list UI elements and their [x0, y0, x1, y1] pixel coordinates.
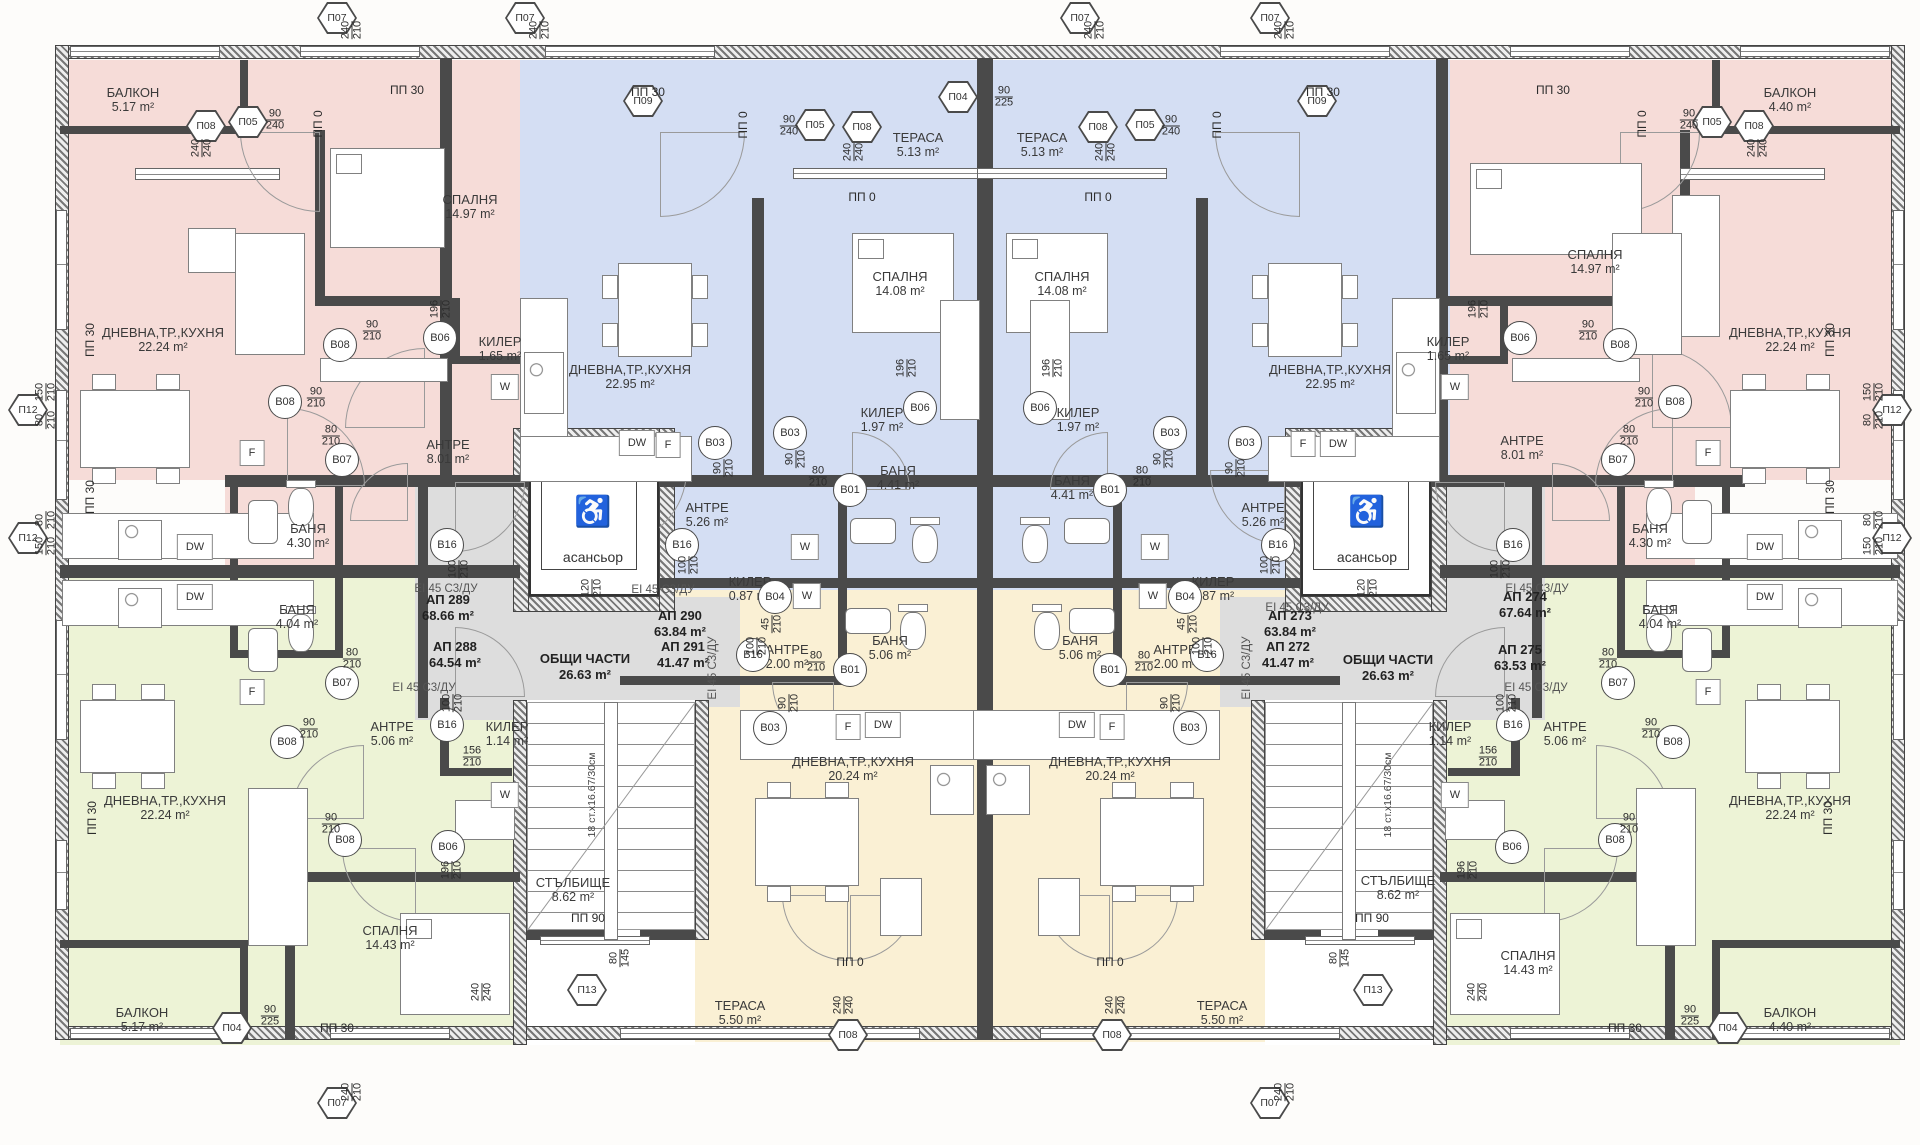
- pp-annotation: ПП 30: [85, 801, 99, 835]
- appliance-label: F: [1291, 431, 1316, 457]
- door-tag-circle: В06: [1023, 391, 1057, 425]
- fire-rating-label: EI 45 С3/ДУ: [1265, 602, 1328, 614]
- apartment-label: АП 29141.47 m²: [657, 639, 709, 671]
- fire-rating-label: EI 45 С3/ДУ: [1505, 583, 1568, 595]
- sink: [248, 628, 278, 672]
- room-area: 5.50 m²: [715, 1013, 766, 1028]
- door-tag-circle: В04: [758, 580, 792, 614]
- dimension: 150210: [1863, 383, 1886, 401]
- room-name: БАНЯ: [276, 602, 318, 617]
- room-area: 5.06 m²: [370, 734, 413, 749]
- pp-annotation: ПП 30: [1823, 480, 1837, 514]
- room-name: АНТРЕ: [370, 719, 413, 734]
- door-tag-circle: В07: [325, 666, 359, 700]
- room-area: 14.08 m²: [873, 284, 928, 299]
- sink: [845, 608, 891, 634]
- dimension: 90225: [261, 1005, 279, 1028]
- toilet-tank: [910, 517, 940, 525]
- dimension: 45210: [761, 615, 784, 633]
- room-area: 5.06 m²: [1543, 734, 1586, 749]
- apartment-label: ОБЩИ ЧАСТИ26.63 m²: [540, 651, 630, 683]
- room-name: ДНЕВНА,ТР.,КУХНЯ: [792, 754, 914, 769]
- stove-hob: [930, 765, 974, 815]
- room-name: СТЪЛБИЩЕ: [536, 875, 610, 890]
- toilet: [1022, 525, 1048, 563]
- room-area: 5.06 m²: [869, 648, 911, 663]
- dimension: 80210: [1133, 466, 1151, 489]
- room-label: СПАЛНЯ14.43 m²: [363, 923, 418, 953]
- interior-wall: [230, 480, 238, 656]
- room-label: ТЕРАСА5.13 m²: [893, 130, 944, 160]
- elevator-label: асансьор: [563, 549, 623, 565]
- window: [545, 46, 715, 57]
- dining-table: [80, 700, 175, 773]
- room-label: БАНЯ4.41 m²: [1051, 473, 1093, 503]
- room-area: 1.97 m²: [861, 420, 904, 435]
- room-name: БАНЯ: [1059, 633, 1101, 648]
- dimension: 90210: [1160, 694, 1183, 712]
- room-name: СПАЛНЯ: [363, 923, 418, 938]
- dimension: 90225: [1681, 1005, 1699, 1028]
- room-label: ДНЕВНА,ТР.,КУХНЯ22.24 m²: [102, 325, 224, 355]
- appliance-label: DW: [177, 584, 213, 610]
- door-tag-circle: В08: [1603, 328, 1637, 362]
- dimension: 100210: [442, 694, 465, 712]
- room-area: 5.17 m²: [116, 1020, 169, 1035]
- dimension: 196210: [441, 861, 464, 879]
- stove-hob: [1798, 520, 1842, 560]
- pp-annotation: ПП 0: [1084, 190, 1111, 204]
- room-area: 14.43 m²: [363, 938, 418, 953]
- dimension: 240240: [1095, 143, 1118, 161]
- hex-tag-label: П04: [940, 83, 976, 111]
- room-label: ДНЕВНА,ТР.,КУХНЯ22.24 m²: [104, 793, 226, 823]
- elevator-label: асансьор: [1337, 549, 1397, 565]
- room-name: ТЕРАСА: [893, 130, 944, 145]
- room-area: 22.95 m²: [1269, 377, 1391, 392]
- room-area: 4.30 m²: [1629, 536, 1671, 551]
- room-area: 8.01 m²: [426, 452, 469, 467]
- dimension: 90210: [778, 694, 801, 712]
- room-label: ДНЕВНА,ТР.,КУХНЯ22.95 m²: [1269, 362, 1391, 392]
- apartment-number: ОБЩИ ЧАСТИ: [540, 651, 630, 667]
- room-label: КИЛЕР1.97 m²: [861, 405, 904, 435]
- room-label: АНТРЕ8.01 m²: [426, 437, 469, 467]
- room-area: 4.41 m²: [1051, 488, 1093, 503]
- chair: [1806, 374, 1830, 390]
- room-label: СПАЛНЯ14.97 m²: [443, 192, 498, 222]
- room-name: БАНЯ: [1639, 602, 1681, 617]
- door-tag-circle: В06: [1503, 321, 1537, 355]
- apartment-label: АП 28968.66 m²: [422, 592, 474, 624]
- appliance-label: W: [1141, 534, 1169, 560]
- dimension: 80210: [343, 648, 361, 671]
- interior-wall: [1617, 480, 1625, 656]
- room-name: АНТРЕ: [685, 500, 728, 515]
- dining-table: [618, 263, 692, 357]
- dimension: 240240: [1105, 996, 1128, 1014]
- door-tag-circle: В06: [1495, 830, 1529, 864]
- window: [1893, 840, 1904, 910]
- room-label: БАНЯ5.06 m²: [1059, 633, 1101, 663]
- pp-annotation: ПП 0: [736, 111, 750, 138]
- dimension: 90210: [1620, 813, 1638, 836]
- chair: [1806, 684, 1830, 700]
- chair: [825, 782, 849, 798]
- room-name: БАЛКОН: [1764, 85, 1817, 100]
- room-label: БАНЯ5.06 m²: [869, 633, 911, 663]
- dimension: 150210: [35, 537, 58, 555]
- interior-wall: [230, 650, 343, 658]
- chair: [1252, 275, 1268, 299]
- room-area: 4.40 m²: [1764, 100, 1817, 115]
- room-label: БАНЯ4.04 m²: [276, 602, 318, 632]
- stove-hob: [118, 520, 162, 560]
- room-area: 2.00 m²: [765, 657, 808, 672]
- apartment-area: 26.63 m²: [540, 667, 630, 683]
- interior-wall: [335, 480, 343, 656]
- room-label: АНТРЕ2.00 m²: [765, 642, 808, 672]
- window: [56, 390, 67, 500]
- appliance-label: DW: [619, 430, 655, 456]
- room-name: АНТРЕ: [765, 642, 808, 657]
- room-label: АНТРЕ5.06 m²: [1543, 719, 1586, 749]
- room-label: СПАЛНЯ14.08 m²: [1035, 269, 1090, 299]
- pp-annotation: ПП 30: [1536, 83, 1570, 97]
- chair: [1252, 323, 1268, 347]
- apartment-number: ОБЩИ ЧАСТИ: [1343, 652, 1433, 668]
- sofa: [248, 788, 308, 946]
- pp-annotation: ПП 30: [1823, 323, 1837, 357]
- exterior-wall: [695, 700, 709, 940]
- dimension: 240210: [341, 1083, 364, 1101]
- sink: [248, 500, 278, 544]
- stair-note: 18 ст.х16.67/30см: [586, 753, 598, 838]
- door-tag-circle: В03: [753, 711, 787, 745]
- dimension: 90210: [1579, 320, 1597, 343]
- dimension: 240240: [833, 996, 856, 1014]
- room-area: 20.24 m²: [1049, 769, 1171, 784]
- dimension: 90240: [1680, 109, 1698, 132]
- hex-tag-label: П08: [830, 1021, 866, 1049]
- interior-wall: [752, 198, 764, 482]
- room-area: 5.17 m²: [107, 100, 160, 115]
- pillow: [1476, 169, 1502, 189]
- room-name: БАНЯ: [1629, 521, 1671, 536]
- room-area: 8.01 m²: [1500, 448, 1543, 463]
- appliance-label: DW: [1059, 712, 1095, 738]
- room-name: АНТРЕ: [426, 437, 469, 452]
- apartment-label: АП 27241.47 m²: [1262, 639, 1314, 671]
- room-name: ДНЕВНА,ТР.,КУХНЯ: [102, 325, 224, 340]
- door-tag-circle: В07: [1601, 666, 1635, 700]
- interior-wall: [985, 578, 1350, 588]
- appliance-label: F: [1696, 679, 1721, 705]
- chair: [1742, 374, 1766, 390]
- apartment-label: ОБЩИ ЧАСТИ26.63 m²: [1343, 652, 1433, 684]
- apartment-number: АП 291: [657, 639, 709, 655]
- apartment-label: АП 27563.53 m²: [1494, 642, 1546, 674]
- pillow: [336, 154, 362, 174]
- pp-annotation: ПП 90: [571, 911, 605, 925]
- dimension: 90240: [1162, 115, 1180, 138]
- apartment-number: АП 275: [1494, 642, 1546, 658]
- dining-table: [1268, 263, 1342, 357]
- room-name: СПАЛНЯ: [1035, 269, 1090, 284]
- room-label: БАЛКОН4.40 m²: [1764, 1005, 1817, 1035]
- room-area: 22.24 m²: [102, 340, 224, 355]
- dimension: 80210: [35, 411, 58, 429]
- window: [56, 840, 67, 910]
- dining-table: [80, 390, 190, 468]
- room-label: ДНЕВНА,ТР.,КУХНЯ22.95 m²: [569, 362, 691, 392]
- room-label: ТЕРАСА5.50 m²: [1197, 998, 1248, 1028]
- dimension: 240210: [529, 21, 552, 39]
- stair-note: 18 ст.х16.67/30см: [1382, 753, 1394, 838]
- dimension: 240210: [1084, 21, 1107, 39]
- room-area: 4.30 m²: [287, 536, 329, 551]
- door-tag-circle: В08: [1656, 725, 1690, 759]
- room-area: 1.65 m²: [1427, 349, 1470, 364]
- dimension: 80210: [35, 511, 58, 529]
- room-label: АНТРЕ5.26 m²: [685, 500, 728, 530]
- appliance-label: DW: [865, 712, 901, 738]
- room-name: СТЪЛБИЩЕ: [1361, 873, 1435, 888]
- pillow: [1456, 919, 1482, 939]
- door-tag-circle: В08: [323, 328, 357, 362]
- apartment-area: 63.84 m²: [654, 624, 706, 640]
- dimension: 196210: [1468, 300, 1491, 318]
- pp-annotation: ПП 30: [1821, 801, 1835, 835]
- door-tag-circle: В01: [833, 473, 867, 507]
- dimension: 80210: [807, 651, 825, 674]
- room-label: ДНЕВНА,ТР.,КУХНЯ20.24 m²: [792, 754, 914, 784]
- room-label: СТЪЛБИЩЕ8.62 m²: [536, 875, 610, 905]
- room-name: КИЛЕР: [861, 405, 904, 420]
- pp-annotation: ПП 30: [320, 1021, 354, 1035]
- room-name: ДНЕВНА,ТР.,КУХНЯ: [104, 793, 226, 808]
- dining-table: [1730, 390, 1840, 468]
- chair: [825, 886, 849, 902]
- room-name: БАНЯ: [1051, 473, 1093, 488]
- chair: [767, 886, 791, 902]
- dimension: 240240: [191, 139, 214, 157]
- room-area: 20.24 m²: [792, 769, 914, 784]
- room-area: 5.50 m²: [1197, 1013, 1248, 1028]
- interior-wall: [1722, 480, 1730, 656]
- dimension: 90240: [780, 115, 798, 138]
- chair: [1112, 782, 1136, 798]
- dimension: 80210: [322, 425, 340, 448]
- room-label: СПАЛНЯ14.43 m²: [1501, 948, 1556, 978]
- room-name: ДНЕВНА,ТР.,КУХНЯ: [1049, 754, 1171, 769]
- room-area: 8.62 m²: [536, 890, 610, 905]
- window: [1680, 168, 1825, 180]
- door-tag-circle: В08: [1658, 385, 1692, 419]
- dimension: 156210: [463, 746, 481, 769]
- hex-tag-label: П08: [188, 112, 224, 140]
- toilet-tank: [286, 480, 316, 488]
- room-name: КИЛЕР: [1429, 719, 1472, 734]
- dimension: 196210: [1457, 861, 1480, 879]
- wardrobe: [940, 300, 980, 420]
- room-name: КИЛЕР: [486, 719, 529, 734]
- appliance-label: F: [1696, 440, 1721, 466]
- toilet-tank: [898, 604, 928, 612]
- dimension: 90210: [300, 718, 318, 741]
- dimension: 100210: [1496, 694, 1519, 712]
- appliance-label: F: [1100, 714, 1125, 740]
- room-area: 5.13 m²: [893, 145, 944, 160]
- room-name: ДНЕВНА,ТР.,КУХНЯ: [569, 362, 691, 377]
- room-area: 22.24 m²: [104, 808, 226, 823]
- toilet: [1034, 612, 1060, 650]
- room-area: 14.97 m²: [1568, 262, 1623, 277]
- fire-rating-label: EI 45 С3/ДУ: [414, 583, 477, 595]
- room-label: БАНЯ4.04 m²: [1639, 602, 1681, 632]
- exterior-wall: [513, 596, 675, 612]
- hex-tag-label: П08: [1094, 1021, 1130, 1049]
- room-label: СПАЛНЯ14.08 m²: [873, 269, 928, 299]
- dining-table: [1745, 700, 1840, 773]
- door-tag-circle: В03: [773, 416, 807, 450]
- room-label: КИЛЕР1.65 m²: [1427, 334, 1470, 364]
- window: [1740, 46, 1890, 57]
- room-name: АНТРЕ: [1500, 433, 1543, 448]
- appliance-label: F: [240, 440, 265, 466]
- dimension: 90240: [266, 109, 284, 132]
- dimension: 196210: [430, 300, 453, 318]
- chair: [141, 684, 165, 700]
- room-area: 1.97 m²: [1057, 420, 1100, 435]
- apartment-label: АП 29063.84 m²: [654, 608, 706, 640]
- sink: [1682, 628, 1712, 672]
- dimension: 150210: [35, 383, 58, 401]
- pp-annotation: ПП 0: [848, 190, 875, 204]
- appliance-label: W: [1441, 374, 1469, 400]
- chair: [1170, 886, 1194, 902]
- room-area: 5.13 m²: [1017, 145, 1068, 160]
- window: [1305, 936, 1415, 945]
- interior-wall: [1718, 940, 1900, 948]
- fire-rating-label: EI 45 С3/ДУ: [1504, 682, 1567, 694]
- appliance-label: W: [793, 583, 821, 609]
- dimension: 100210: [1192, 637, 1215, 655]
- room-area: 14.08 m²: [1035, 284, 1090, 299]
- room-area: 8.62 m²: [1361, 888, 1435, 903]
- stove-hob: [986, 765, 1030, 815]
- door-tag-circle: В06: [423, 321, 457, 355]
- room-area: 5.26 m²: [685, 515, 728, 530]
- hex-tag-label: П13: [569, 976, 605, 1004]
- room-label: СПАЛНЯ14.97 m²: [1568, 247, 1623, 277]
- chair: [1342, 275, 1358, 299]
- toilet-tank: [1020, 517, 1050, 525]
- door-tag-circle: В04: [1168, 580, 1202, 614]
- interior-wall: [1196, 198, 1208, 482]
- room-name: СПАЛНЯ: [1501, 948, 1556, 963]
- appliance-label: W: [491, 782, 519, 808]
- room-name: КИЛЕР: [479, 334, 522, 349]
- dimension: 100210: [678, 556, 701, 574]
- room-name: ТЕРАСА: [1017, 130, 1068, 145]
- interior-wall: [1617, 650, 1730, 658]
- pillow: [858, 239, 884, 259]
- appliance-label: F: [656, 432, 681, 458]
- dimension: 80145: [1329, 949, 1352, 967]
- room-name: СПАЛНЯ: [873, 269, 928, 284]
- room-label: БАЛКОН5.17 m²: [116, 1005, 169, 1035]
- apartment-area: 68.66 m²: [422, 608, 474, 624]
- appliance-label: W: [491, 374, 519, 400]
- dimension: 90225: [995, 86, 1013, 109]
- dimension: 90210: [785, 450, 808, 468]
- window: [1040, 1028, 1340, 1039]
- chair: [1112, 886, 1136, 902]
- door-tag-circle: В16: [1496, 528, 1530, 562]
- dimension: 240240: [1467, 983, 1490, 1001]
- toilet: [912, 525, 938, 563]
- appliance-label: DW: [177, 534, 213, 560]
- room-name: СПАЛНЯ: [443, 192, 498, 207]
- window: [1893, 210, 1904, 330]
- hex-tag-label: П13: [1355, 976, 1391, 1004]
- sink: [1064, 518, 1110, 544]
- dining-table: [1100, 798, 1204, 886]
- stove-hob: [118, 588, 162, 628]
- stove-hob: [524, 352, 564, 414]
- dimension: 80145: [609, 949, 632, 967]
- pp-annotation: ПП 30: [631, 85, 665, 99]
- window: [540, 936, 650, 945]
- dimension: 45210: [1177, 615, 1200, 633]
- interior-wall: [440, 59, 452, 480]
- door-tag-circle: В06: [431, 830, 465, 864]
- room-name: АНТРЕ: [1241, 500, 1284, 515]
- room-label: СТЪЛБИЩЕ8.62 m²: [1361, 873, 1435, 903]
- apartment-area: 63.84 m²: [1264, 624, 1316, 640]
- window: [1510, 46, 1630, 57]
- window: [56, 210, 67, 330]
- hex-tag-label: П05: [1694, 108, 1730, 136]
- dimension: 90210: [713, 459, 736, 477]
- appliance-label: W: [791, 534, 819, 560]
- sofa: [188, 228, 236, 273]
- toilet-tank: [1644, 480, 1674, 488]
- wheelchair-icon: ♿: [1348, 495, 1385, 530]
- hex-tag-label: П04: [1710, 1014, 1746, 1042]
- pp-annotation: ПП 0: [1210, 111, 1224, 138]
- dimension: 90210: [1153, 450, 1176, 468]
- sink: [1069, 608, 1115, 634]
- chair: [1742, 468, 1766, 484]
- pp-annotation: ПП 30: [1306, 85, 1340, 99]
- apartment-area: 67.64 m²: [1499, 605, 1551, 621]
- dimension: 240240: [471, 983, 494, 1001]
- interior-wall: [1448, 768, 1520, 776]
- chair: [1342, 323, 1358, 347]
- apartment-number: АП 290: [654, 608, 706, 624]
- window: [300, 46, 420, 57]
- room-name: ДНЕВНА,ТР.,КУХНЯ: [1269, 362, 1391, 377]
- dimension: 90210: [322, 813, 340, 836]
- wheelchair-icon: ♿: [574, 495, 611, 530]
- dimension: 80210: [809, 466, 827, 489]
- room-area: 4.40 m²: [1764, 1020, 1817, 1035]
- sofa: [880, 878, 922, 936]
- door-tag-circle: В07: [325, 443, 359, 477]
- room-area: 22.95 m²: [569, 377, 691, 392]
